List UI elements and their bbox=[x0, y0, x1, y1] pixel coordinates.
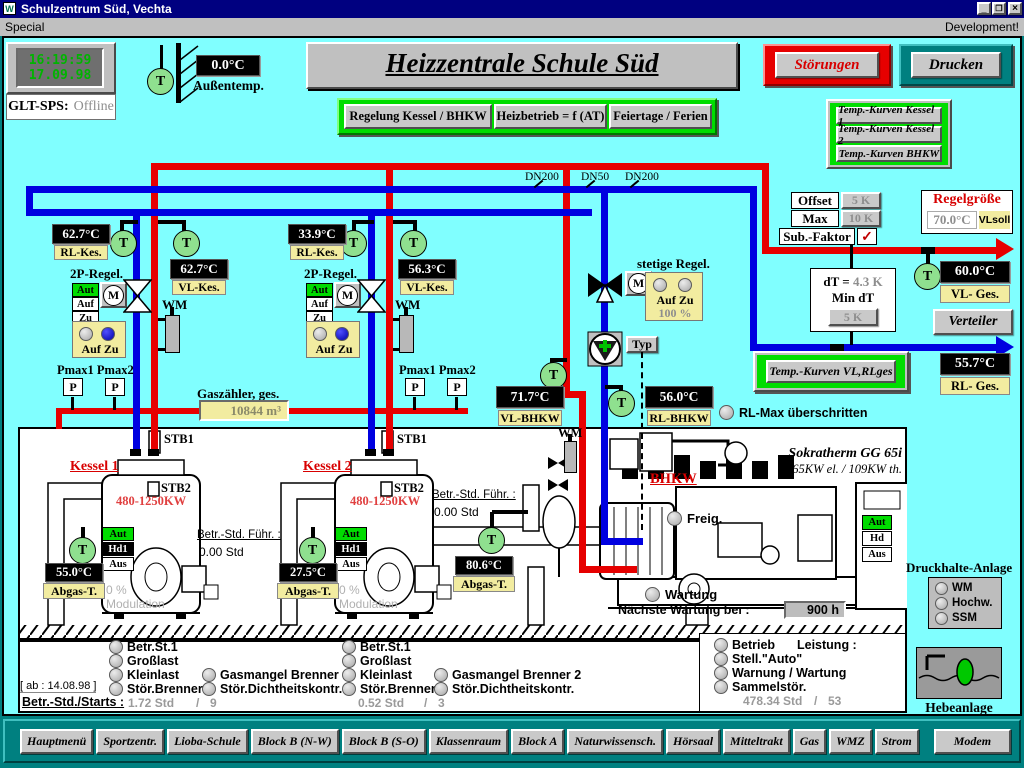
k1-rl-display: 62.7°C bbox=[52, 224, 110, 244]
k2-gasmangel-light bbox=[434, 668, 448, 682]
nav-button-block-b-so[interactable]: Block B (S-O) bbox=[342, 729, 426, 754]
pipe-segment bbox=[850, 332, 853, 345]
rl-bhkw-badge: RL-BHKW bbox=[647, 410, 711, 426]
k1-hd1-button[interactable]: Hd1 bbox=[102, 542, 134, 556]
pipe-segment bbox=[579, 391, 586, 573]
pipe-segment bbox=[155, 163, 769, 170]
k2-auf-light bbox=[313, 327, 327, 341]
curve-kessel1-button[interactable]: Temp.-Kurven Kessel 1 bbox=[836, 107, 942, 124]
vl-ges-display: 60.0°C bbox=[940, 261, 1010, 283]
k2-power-label: 480-1250KW bbox=[350, 494, 420, 509]
bhkw-wm-meter-stem bbox=[568, 434, 572, 442]
pipe-segment bbox=[130, 449, 141, 456]
pipe-segment bbox=[750, 186, 757, 351]
bhkw-sammelstoer-label: Sammelstör. bbox=[732, 680, 806, 694]
k1-grosslast-label: Großlast bbox=[127, 654, 178, 668]
k1-aus-button[interactable]: Aus bbox=[102, 557, 134, 571]
k1-betr-value: 0.00 Std bbox=[199, 545, 244, 559]
k2-vl-badge: VL-Kes. bbox=[400, 280, 454, 295]
nav-button-naturwissensch[interactable]: Naturwissensch. bbox=[567, 729, 663, 754]
abgas-ges-badge: Abgas-T. bbox=[453, 576, 515, 592]
bhkw-sammelstoer-light bbox=[714, 680, 728, 694]
menu-special[interactable]: Special bbox=[5, 20, 44, 34]
k2-stoerbrenner-label: Stör.Brenner bbox=[360, 682, 436, 696]
pipe-segment bbox=[383, 449, 394, 456]
k2-gasmangel-label: Gasmangel Brenner 2 bbox=[452, 668, 581, 682]
k1-stoerbrenner-light bbox=[109, 682, 123, 696]
pipe-segment bbox=[26, 209, 592, 216]
pipe-segment bbox=[26, 186, 757, 193]
nav-button-strom[interactable]: Strom bbox=[875, 729, 919, 754]
minimize-button[interactable]: _ bbox=[977, 2, 991, 15]
bhkw-label: BHKW bbox=[650, 471, 697, 488]
nav-bar: Hauptmenü Sportzentr. Lioba-Schule Block… bbox=[20, 729, 1010, 754]
k2-pmax2-sensor[interactable]: P bbox=[447, 378, 467, 396]
vl-bhkw-display: 71.7°C bbox=[496, 386, 564, 408]
pipe-segment bbox=[762, 247, 998, 254]
rl-bhkw-temp-sensor-icon: T bbox=[608, 390, 635, 417]
wartung-label: Wartung bbox=[665, 587, 717, 602]
abgas-ges-display: 80.6°C bbox=[455, 556, 513, 575]
k2-wm-meter-stem bbox=[404, 307, 408, 316]
freig-label: Freig. bbox=[687, 511, 722, 526]
k1-aufzu-label: Auf Zu bbox=[73, 342, 127, 357]
next-wartung-display: 900 h bbox=[784, 601, 846, 619]
druckhalte-ssm-label: SSM bbox=[952, 612, 977, 624]
bhkw-stellauto-label: Stell."Auto" bbox=[732, 652, 802, 666]
k1-gasmangel-light bbox=[202, 668, 216, 682]
k2-starts-value: 3 bbox=[438, 696, 445, 710]
druckhalte-box: WM Hochw. SSM bbox=[928, 577, 1002, 629]
k1-pmax1-sensor[interactable]: P bbox=[63, 378, 83, 396]
k1-dichtheit-label: Stör.Dichtheitskontr. bbox=[220, 682, 342, 696]
nav-button-wmz[interactable]: WMZ bbox=[829, 729, 872, 754]
hebeanlage-label: Hebeanlage bbox=[916, 700, 1002, 716]
pipe-segment bbox=[762, 163, 769, 254]
k2-stoerbrenner-light bbox=[342, 682, 356, 696]
k2-modulation-label: Modulation bbox=[339, 597, 398, 611]
bhkw-hours-value: 478.34 Std bbox=[743, 694, 802, 708]
motor-m-icon: M bbox=[103, 285, 124, 306]
pipe-segment bbox=[850, 245, 853, 268]
dt-row: dT = 4.3 K bbox=[810, 274, 896, 290]
pump-icon bbox=[586, 330, 624, 368]
bhkw-warnung-light bbox=[714, 666, 728, 680]
pipe-segment bbox=[365, 449, 376, 456]
druckhalte-wm-label: WM bbox=[952, 582, 972, 594]
rl-ges-display: 55.7°C bbox=[940, 353, 1010, 375]
druckhalte-wm-light bbox=[935, 582, 948, 595]
aussentemp-temp-sensor-icon: T bbox=[147, 68, 174, 95]
vlsoll-badge: VLsoll bbox=[979, 211, 1010, 229]
bhkw-starts-value: 53 bbox=[828, 694, 841, 708]
pipe-segment bbox=[148, 449, 159, 456]
verteiler-button[interactable]: Verteiler bbox=[933, 309, 1013, 335]
stetige-percent: 100 % bbox=[646, 306, 704, 321]
dn200-label-2: DN200 bbox=[625, 171, 659, 183]
lcd-display: 16:19:59 17.09.98 bbox=[16, 48, 104, 88]
k2-vl-display: 56.3°C bbox=[398, 259, 456, 279]
dashed-link-line bbox=[641, 352, 643, 530]
bhkw-aut-button[interactable]: Aut bbox=[862, 515, 892, 530]
nav-button-block-a[interactable]: Block A bbox=[511, 729, 564, 754]
druckhalte-title: Druckhalte-Anlage bbox=[906, 560, 1012, 576]
next-wartung-value: 900 h bbox=[807, 603, 839, 617]
bhkw-betrieb-light bbox=[714, 638, 728, 652]
k2-kleinlast-label: Kleinlast bbox=[360, 668, 412, 682]
k1-modulation-pct: 0 % bbox=[106, 583, 127, 597]
max-label: Max bbox=[791, 210, 839, 227]
k1-stb1-label: STB1 bbox=[164, 432, 194, 447]
k1-vl-badge: VL-Kes. bbox=[172, 280, 226, 295]
k2-valve-auf-button[interactable]: Auf bbox=[306, 297, 333, 311]
k2-vl-temp-sensor-icon: T bbox=[400, 230, 427, 257]
dt-value: 4.3 K bbox=[853, 274, 883, 289]
k1-abgas-display: 55.0°C bbox=[45, 563, 103, 582]
abgas-ges-temp-sensor-icon: T bbox=[478, 527, 505, 554]
pipe-segment bbox=[601, 538, 643, 545]
k1-gasmangel-label: Gasmangel Brenner 1 bbox=[220, 668, 349, 682]
window-title: Schulzentrum Süd, Vechta bbox=[21, 2, 172, 16]
vl-bhkw-badge: VL-BHKW bbox=[498, 410, 562, 426]
k1-auf-light bbox=[79, 327, 93, 341]
k1-starts-value: 9 bbox=[210, 696, 217, 710]
bhkw-aus-button[interactable]: Aus bbox=[862, 547, 892, 562]
nav-button-klassenraum[interactable]: Klassenraum bbox=[429, 729, 508, 754]
k2-aus-button[interactable]: Aus bbox=[335, 557, 367, 571]
gas-meter-value: 10844 m³ bbox=[231, 403, 281, 419]
curve-bhkw-button[interactable]: Temp.-Kurven BHKW bbox=[836, 145, 942, 162]
k2-betr-value: 0.00 Std bbox=[434, 505, 479, 519]
bhkw-hours-sep: / bbox=[814, 694, 817, 708]
pipe-segment bbox=[455, 397, 458, 410]
druckhalte-hochw-label: Hochw. bbox=[952, 597, 992, 609]
k1-valve-auf-button[interactable]: Auf bbox=[72, 297, 99, 311]
k1-valve-icon bbox=[123, 279, 152, 313]
k2-abgas-temp-sensor-icon: T bbox=[299, 537, 326, 564]
pipe-segment bbox=[492, 510, 528, 514]
bhkw-hd-button[interactable]: Hd bbox=[862, 531, 892, 546]
k2-abgas-badge: Abgas-T. bbox=[277, 583, 339, 599]
k1-valve-indicator-panel: Auf Zu bbox=[72, 321, 126, 358]
offset-value-button[interactable]: 5 K bbox=[841, 192, 881, 209]
druckhalte-ssm-light bbox=[935, 612, 948, 625]
glt-sps-box: GLT-SPS: Offline bbox=[6, 94, 116, 120]
nav-button-modem[interactable]: Modem bbox=[934, 729, 1011, 754]
k1-rl-badge: RL-Kes. bbox=[54, 245, 108, 260]
k1-aut-button[interactable]: Aut bbox=[102, 527, 134, 541]
restore-button[interactable]: ❐ bbox=[992, 2, 1006, 15]
freig-light bbox=[667, 511, 682, 526]
stetige-auf-light bbox=[653, 278, 667, 292]
k2-stb1-label: STB1 bbox=[397, 432, 427, 447]
sub-faktor-label: Sub.-Faktor bbox=[779, 228, 855, 245]
k1-grosslast-light bbox=[109, 654, 123, 668]
p2-title-1: 2P-Regel. bbox=[70, 266, 123, 282]
lcd-date: 17.09.98 bbox=[29, 68, 92, 83]
menu-bar: Special Development! bbox=[0, 18, 1024, 36]
feiertage-ferien-button[interactable]: Feiertage / Ferien bbox=[609, 104, 712, 129]
bhkw-warnung-label: Warnung / Wartung bbox=[732, 666, 846, 680]
k1-betrst1-light bbox=[109, 640, 123, 654]
k2-modulation-pct: 0 % bbox=[339, 583, 360, 597]
sub-faktor-checkbox[interactable]: ✓ bbox=[857, 228, 877, 245]
nav-button-gas[interactable]: Gas bbox=[793, 729, 826, 754]
min-dt-button[interactable]: 5 K bbox=[828, 308, 878, 326]
k1-stoerbrenner-label: Stör.Brenner bbox=[127, 682, 203, 696]
glt-sps-label: GLT-SPS: bbox=[8, 99, 68, 115]
pipe-segment bbox=[368, 211, 375, 455]
pipe-segment bbox=[563, 170, 570, 398]
nav-button-mitteltrakt[interactable]: Mitteltrakt bbox=[723, 729, 790, 754]
stetige-regel-label: stetige Regel. bbox=[637, 256, 710, 272]
close-button[interactable]: × bbox=[1008, 2, 1022, 15]
menu-development[interactable]: Development! bbox=[945, 20, 1019, 34]
max-value-button[interactable]: 10 K bbox=[841, 210, 881, 227]
k2-pmax1-sensor[interactable]: P bbox=[405, 378, 425, 396]
vl-ges-badge: VL- Ges. bbox=[940, 285, 1010, 303]
gas-meter-display: 10844 m³ bbox=[199, 400, 289, 421]
pipe-segment bbox=[71, 397, 74, 410]
k1-wm-meter-icon bbox=[165, 315, 180, 353]
k2-grosslast-light bbox=[342, 654, 356, 668]
regelgroesse-title: Regelgröße bbox=[921, 192, 1013, 208]
k1-power-label: 480-1250KW bbox=[116, 494, 186, 509]
p2-title-2: 2P-Regel. bbox=[304, 266, 357, 282]
k1-kleinlast-label: Kleinlast bbox=[127, 668, 179, 682]
pipe-segment bbox=[113, 397, 116, 410]
k2-wm-meter-icon bbox=[399, 315, 414, 353]
title-bar: W Schulzentrum Süd, Vechta _ ❐ × bbox=[0, 0, 1024, 18]
curve-vlrl-button[interactable]: Temp.-Kurven VL,RLges bbox=[766, 360, 896, 383]
pipe-segment bbox=[579, 566, 637, 573]
min-dt-label: Min dT bbox=[810, 290, 896, 306]
k1-hours-sep: / bbox=[196, 696, 199, 710]
k2-valve-icon bbox=[357, 279, 386, 313]
rl-max-light bbox=[719, 405, 734, 420]
nav-button-block-b-nw[interactable]: Block B (N-W) bbox=[251, 729, 339, 754]
curve-kessel2-button[interactable]: Temp.-Kurven Kessel 2 bbox=[836, 126, 942, 143]
pipe-segment bbox=[921, 247, 935, 254]
offset-label: Offset bbox=[791, 192, 839, 209]
k2-betrst1-label: Betr.St.1 bbox=[360, 640, 411, 654]
vl-ges-temp-sensor-icon: T bbox=[914, 263, 941, 290]
k1-betr-label: Betr.-Std. Führ. : bbox=[197, 529, 281, 541]
k2-hd1-button[interactable]: Hd1 bbox=[335, 542, 367, 556]
vl-bhkw-temp-sensor-icon: T bbox=[540, 362, 567, 389]
k2-valve-aut-button[interactable]: Aut bbox=[306, 283, 333, 297]
typ-button[interactable]: Typ bbox=[626, 336, 658, 353]
pmax-title-1: Pmax1 Pmax2 bbox=[57, 363, 134, 378]
hebeanlage-drawing bbox=[917, 648, 1000, 697]
next-wartung-label: Nächste Wartung bei : bbox=[618, 603, 750, 617]
k1-valve-aut-button[interactable]: Aut bbox=[72, 283, 99, 297]
bhkw-leistung-label: Leistung : bbox=[797, 638, 857, 652]
regelung-kessel-bhkw-button[interactable]: Regelung Kessel / BHKW bbox=[344, 104, 492, 129]
k2-betr-label: Betr.-Std. Führ. : bbox=[432, 489, 516, 501]
nav-button-lioba-schule[interactable]: Lioba-Schule bbox=[167, 729, 248, 754]
outside-temp-label: Außentemp. bbox=[193, 78, 264, 94]
k2-grosslast-label: Großlast bbox=[360, 654, 411, 668]
k1-pmax2-sensor[interactable]: P bbox=[105, 378, 125, 396]
k2-hours-sep: / bbox=[424, 696, 427, 710]
k2-rl-display: 33.9°C bbox=[288, 224, 346, 244]
bhkw-power-label: 65KW el. / 109KW th. bbox=[770, 462, 902, 477]
k2-aufzu-label: Auf Zu bbox=[307, 342, 361, 357]
k2-valve-indicator-panel: Auf Zu bbox=[306, 321, 360, 358]
k1-modulation-label: Modulation bbox=[106, 597, 165, 611]
kessel2-label: Kessel 2 bbox=[303, 459, 352, 475]
k1-kleinlast-light bbox=[109, 668, 123, 682]
flow-arrow-supply-icon bbox=[996, 238, 1014, 260]
k1-vl-display: 62.7°C bbox=[170, 259, 228, 279]
pipe-segment bbox=[413, 397, 416, 410]
k1-wm-label: WM bbox=[162, 297, 187, 313]
druckhalte-hochw-light bbox=[935, 597, 948, 610]
app-icon: W bbox=[3, 2, 16, 15]
pipe-segment bbox=[56, 408, 62, 429]
wartung-light bbox=[645, 587, 660, 602]
k2-kleinlast-light bbox=[342, 668, 356, 682]
kessel1-label: Kessel 1 bbox=[70, 459, 119, 475]
k2-abgas-display: 27.5°C bbox=[279, 563, 337, 582]
hebeanlage-box bbox=[916, 647, 1002, 699]
pipe-segment bbox=[830, 344, 844, 351]
k2-betrst1-light bbox=[342, 640, 356, 654]
k1-abgas-badge: Abgas-T. bbox=[43, 583, 105, 599]
k1-vl-temp-sensor-icon: T bbox=[173, 230, 200, 257]
motor-m-icon: M bbox=[337, 285, 358, 306]
bhkw-betrieb-label: Betrieb bbox=[732, 638, 775, 652]
rl-ges-badge: RL- Ges. bbox=[940, 377, 1010, 395]
glt-sps-status: Offline bbox=[74, 99, 114, 115]
nav-button-hauptmenu[interactable]: Hauptmenü bbox=[20, 729, 93, 754]
drucken-button[interactable]: Drucken bbox=[911, 52, 1001, 78]
rl-bhkw-display: 56.0°C bbox=[645, 386, 713, 408]
page-title: Heizzentrale Schule Süd bbox=[306, 48, 738, 79]
nav-button-hoersaal[interactable]: Hörsaal bbox=[666, 729, 720, 754]
bhkw-wm-meter-icon bbox=[564, 441, 577, 473]
nav-button-sportzentr[interactable]: Sportzentr. bbox=[96, 729, 164, 754]
dt-label: dT = bbox=[823, 274, 849, 289]
bhkw-stellauto-light bbox=[714, 652, 728, 666]
lcd-time: 16:19:59 bbox=[29, 53, 92, 68]
outside-temp-display: 0.0°C bbox=[196, 55, 260, 76]
k2-zu-light bbox=[335, 327, 349, 341]
stetige-zu-light bbox=[678, 278, 692, 292]
bhkw-model-label: Sokratherm GG 65i bbox=[770, 446, 902, 462]
k2-rl-badge: RL-Kes. bbox=[290, 245, 344, 260]
k1-zu-light bbox=[101, 327, 115, 341]
heizbetrieb-button[interactable]: Heizbetrieb = f (AT) bbox=[494, 104, 607, 129]
k1-wm-meter-stem bbox=[170, 307, 174, 316]
k2-hours-value: 0.52 Std bbox=[358, 696, 404, 710]
betr-std-starts-label: Betr.-Std./Starts : bbox=[22, 695, 124, 709]
pipe-segment bbox=[750, 344, 998, 351]
k2-dichtheit-light bbox=[434, 682, 448, 696]
k2-aut-button[interactable]: Aut bbox=[335, 527, 367, 541]
k1-rl-temp-sensor-icon: T bbox=[110, 230, 137, 257]
k2-dichtheit-label: Stör.Dichtheitskontr. bbox=[452, 682, 574, 696]
ab-date-label: [ ab : 14.08.98 ] bbox=[20, 680, 96, 693]
k1-abgas-temp-sensor-icon: T bbox=[69, 537, 96, 564]
vlsoll-value: 70.0°C bbox=[927, 211, 977, 229]
rl-max-label: RL-Max überschritten bbox=[739, 406, 868, 420]
k1-dichtheit-light bbox=[202, 682, 216, 696]
three-way-valve-icon bbox=[586, 266, 624, 304]
pmax-title-2: Pmax1 Pmax2 bbox=[399, 363, 476, 378]
k1-hours-value: 1.72 Std bbox=[128, 696, 174, 710]
stetige-indicator-panel: Auf Zu 100 % bbox=[645, 272, 703, 321]
k1-betrst1-label: Betr.St.1 bbox=[127, 640, 178, 654]
stoerungen-button[interactable]: Störungen bbox=[775, 52, 879, 78]
